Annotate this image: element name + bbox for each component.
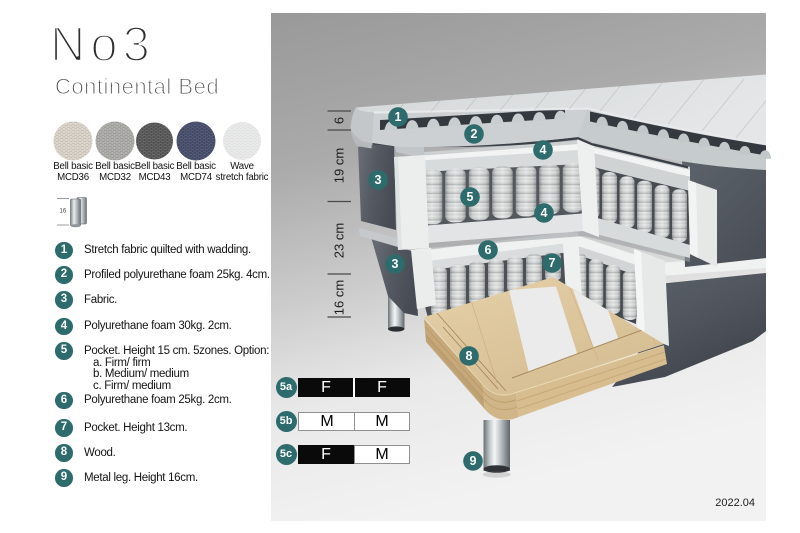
svg-text:23 cm: 23 cm — [331, 223, 346, 258]
svg-text:7: 7 — [549, 256, 556, 270]
svg-text:5: 5 — [467, 190, 474, 204]
svg-text:6: 6 — [485, 243, 492, 257]
svg-text:3: 3 — [375, 173, 382, 187]
svg-text:4: 4 — [540, 143, 547, 157]
svg-text:3: 3 — [392, 257, 399, 271]
svg-text:8: 8 — [466, 349, 473, 363]
svg-text:9: 9 — [470, 454, 477, 468]
svg-text:16 cm: 16 cm — [331, 280, 346, 315]
svg-text:6: 6 — [331, 117, 346, 124]
svg-text:1: 1 — [395, 110, 402, 124]
svg-text:2: 2 — [471, 127, 478, 141]
svg-text:4: 4 — [541, 206, 548, 220]
svg-text:19 cm: 19 cm — [331, 148, 346, 183]
